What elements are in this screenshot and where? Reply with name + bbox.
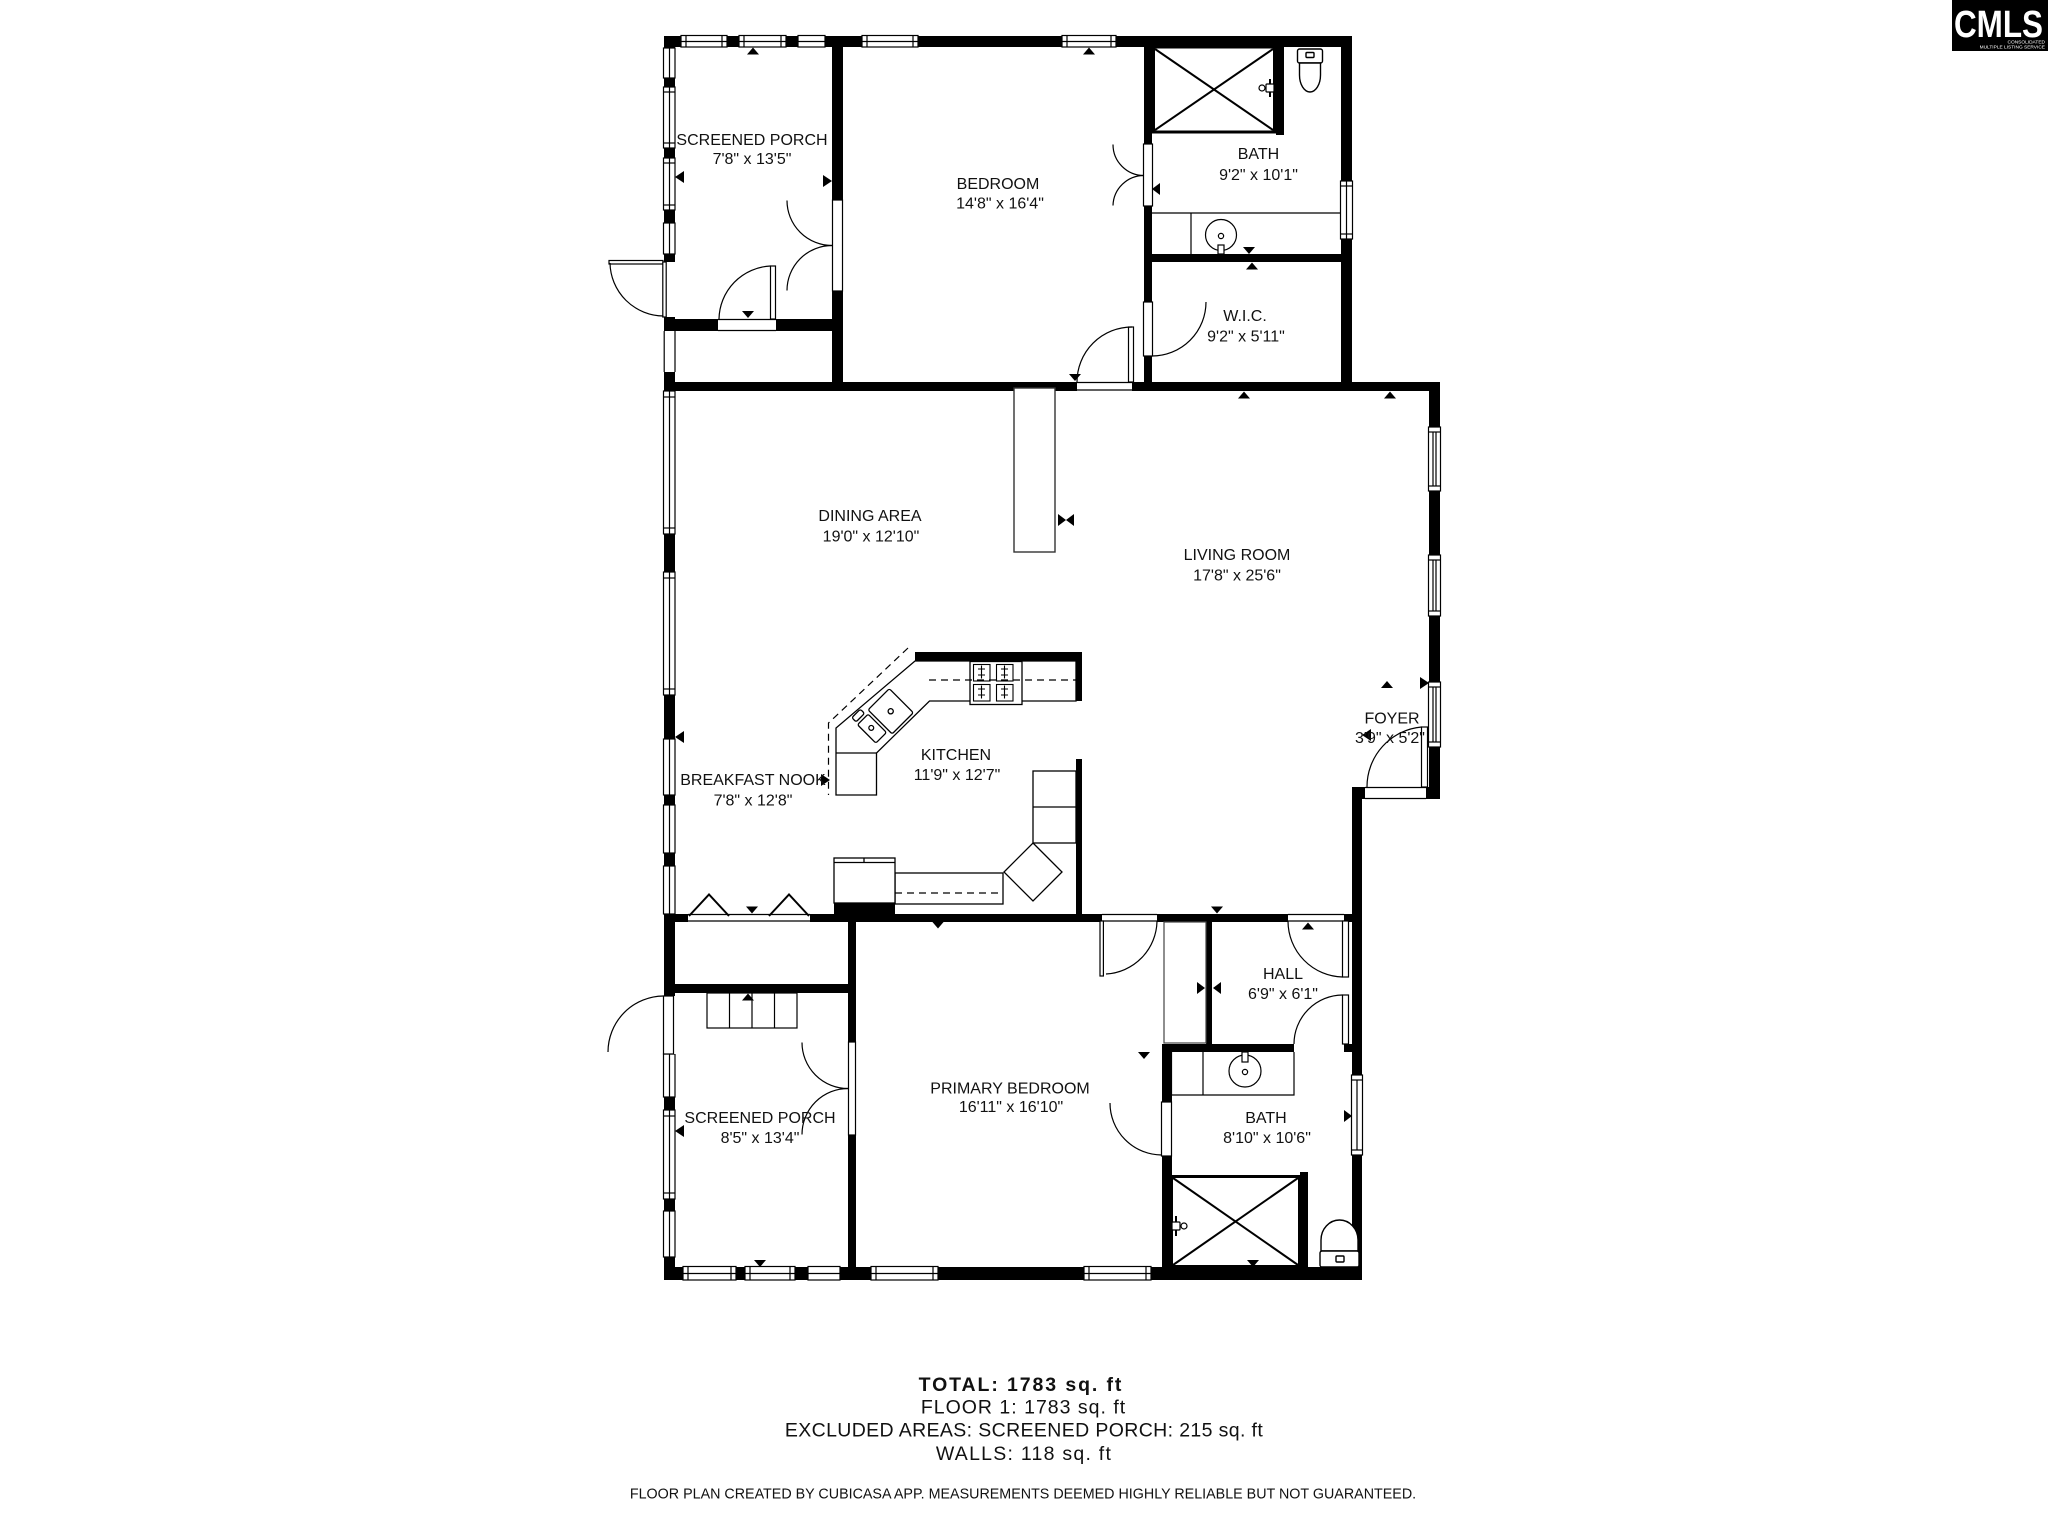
- svg-text:19'0" x 12'10": 19'0" x 12'10": [823, 529, 920, 546]
- svg-text:MULTIPLE LISTING SERVICE: MULTIPLE LISTING SERVICE: [1980, 45, 2045, 51]
- svg-text:6'9" x 6'1": 6'9" x 6'1": [1248, 986, 1318, 1003]
- svg-text:17'8" x 25'6": 17'8" x 25'6": [1193, 568, 1281, 585]
- svg-text:TOTAL: 1783 sq. ft: TOTAL: 1783 sq. ft: [919, 1374, 1124, 1396]
- svg-text:14'8" x 16'4": 14'8" x 16'4": [956, 196, 1044, 213]
- svg-text:SCREENED PORCH: SCREENED PORCH: [684, 1110, 835, 1127]
- svg-text:9'2" x 5'11": 9'2" x 5'11": [1207, 329, 1285, 346]
- svg-text:LIVING ROOM: LIVING ROOM: [1184, 547, 1291, 564]
- svg-text:WALLS: 118 sq. ft: WALLS: 118 sq. ft: [936, 1443, 1112, 1465]
- svg-text:BREAKFAST NOOK: BREAKFAST NOOK: [680, 772, 826, 789]
- svg-text:PRIMARY BEDROOM: PRIMARY BEDROOM: [930, 1081, 1089, 1098]
- svg-text:BEDROOM: BEDROOM: [957, 176, 1040, 193]
- svg-text:16'11" x 16'10": 16'11" x 16'10": [959, 1099, 1063, 1116]
- svg-text:KITCHEN: KITCHEN: [921, 747, 991, 764]
- svg-text:11'9" x 12'7": 11'9" x 12'7": [914, 767, 1001, 784]
- svg-text:8'5" x 13'4": 8'5" x 13'4": [721, 1130, 800, 1147]
- svg-text:W.I.C.: W.I.C.: [1223, 308, 1267, 325]
- svg-text:HALL: HALL: [1263, 966, 1303, 983]
- svg-text:EXCLUDED AREAS: SCREENED PORCH: EXCLUDED AREAS: SCREENED PORCH: 215 sq. …: [785, 1420, 1263, 1442]
- svg-text:FLOOR PLAN CREATED BY CUBICASA: FLOOR PLAN CREATED BY CUBICASA APP. MEAS…: [630, 1487, 1416, 1503]
- svg-text:7'8" x 12'8": 7'8" x 12'8": [714, 793, 793, 810]
- svg-text:3'9" x 5'2": 3'9" x 5'2": [1355, 730, 1425, 747]
- svg-text:8'10" x 10'6": 8'10" x 10'6": [1223, 1130, 1311, 1147]
- svg-text:DINING AREA: DINING AREA: [818, 508, 921, 525]
- svg-text:SCREENED PORCH: SCREENED PORCH: [676, 132, 827, 149]
- svg-text:7'8" x 13'5": 7'8" x 13'5": [713, 151, 792, 168]
- svg-text:9'2" x 10'1": 9'2" x 10'1": [1219, 167, 1298, 184]
- svg-text:FOYER: FOYER: [1364, 711, 1419, 728]
- svg-text:FLOOR 1: 1783 sq. ft: FLOOR 1: 1783 sq. ft: [921, 1397, 1126, 1419]
- svg-text:BATH: BATH: [1245, 1110, 1286, 1127]
- svg-text:BATH: BATH: [1238, 146, 1279, 163]
